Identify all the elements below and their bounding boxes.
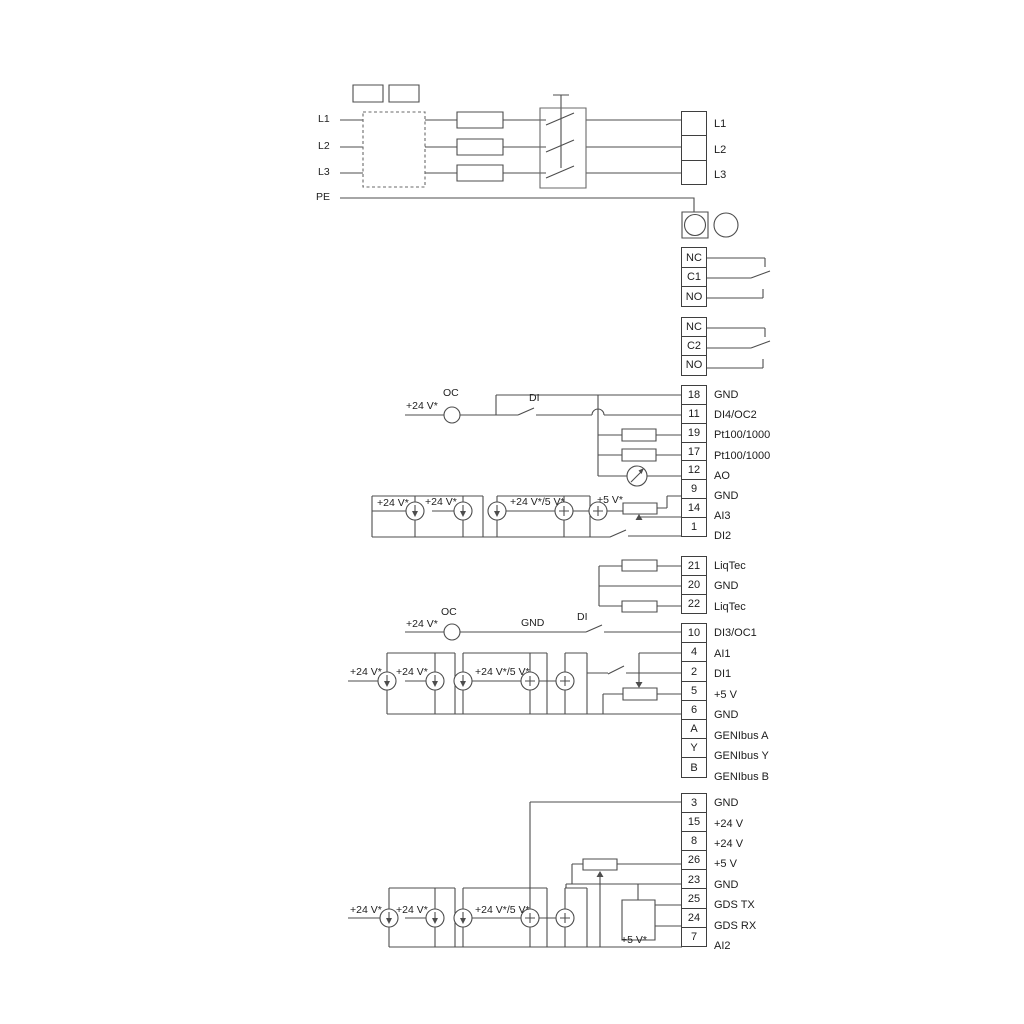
terminal-cell: 1 <box>681 517 707 537</box>
io-strip-3: 3158262325247 <box>681 793 707 947</box>
terminal-number: 8 <box>691 835 697 847</box>
terminal-cell: Y <box>681 738 707 759</box>
terminal-number: 9 <box>691 483 697 495</box>
terminal-label: AI2 <box>714 939 731 953</box>
terminal-label: +24 V <box>714 817 743 831</box>
terminal-number: 12 <box>688 464 700 476</box>
wiring-diagram-canvas <box>0 0 1024 1024</box>
terminal-number: 26 <box>688 854 700 866</box>
diagram-label: +24 V* <box>350 666 382 678</box>
terminal-number: Y <box>690 742 697 754</box>
diagram-label: L1 <box>318 113 330 125</box>
terminal-label: GDS TX <box>714 898 755 912</box>
terminal-number: 5 <box>691 685 697 697</box>
terminal-label: +5 V <box>714 857 737 871</box>
terminal-number: NO <box>686 359 703 371</box>
diagram-label: OC <box>441 606 457 618</box>
terminal-label: GND <box>714 489 738 503</box>
terminal-cell: 8 <box>681 831 707 851</box>
terminal-label: L2 <box>714 143 726 157</box>
terminal-label: LiqTec <box>714 559 746 573</box>
terminal-cell <box>681 111 707 137</box>
terminal-number: NC <box>686 321 702 333</box>
relay-1-terminals: NCC1NO <box>681 247 707 307</box>
terminal-label: GENIbus B <box>714 770 769 784</box>
terminal-cell: 11 <box>681 404 707 424</box>
terminal-cell: 19 <box>681 423 707 443</box>
terminal-label: GND <box>714 388 738 402</box>
terminal-cell: 20 <box>681 575 707 595</box>
terminal-label: AO <box>714 469 730 483</box>
terminal-label: Pt100/1000 <box>714 449 770 463</box>
terminal-cell: 14 <box>681 498 707 518</box>
terminal-cell: B <box>681 757 707 778</box>
main-switch-box <box>540 108 586 188</box>
diagram-label: +24 V* <box>396 666 428 678</box>
io-strip-1: 18111917129141 <box>681 385 707 537</box>
terminal-cell: 3 <box>681 793 707 813</box>
mains-output-terminals <box>681 111 707 185</box>
terminal-label: GENIbus Y <box>714 749 769 763</box>
terminal-label: DI1 <box>714 667 731 681</box>
terminal-number: 7 <box>691 931 697 943</box>
terminal-cell: 4 <box>681 642 707 663</box>
terminal-label: LiqTec <box>714 600 746 614</box>
terminal-number: 25 <box>688 893 700 905</box>
terminal-cell: NC <box>681 317 707 337</box>
diagram-label: +24 V* <box>406 618 438 630</box>
diagram-label: +24 V* <box>350 904 382 916</box>
diagram-label: OC <box>443 387 459 399</box>
terminal-number: 15 <box>688 816 700 828</box>
diagram-label: +5 V* <box>597 494 623 506</box>
terminal-cell: 15 <box>681 812 707 832</box>
terminal-cell: 10 <box>681 623 707 644</box>
diagram-label: PE <box>316 191 330 203</box>
terminal-cell: C2 <box>681 336 707 356</box>
terminal-number: 6 <box>691 704 697 716</box>
terminal-label: GND <box>714 579 738 593</box>
io-strip-2: 104256AYB <box>681 623 707 778</box>
terminal-cell: 12 <box>681 460 707 480</box>
terminal-label: GND <box>714 796 738 810</box>
terminal-cell: 22 <box>681 594 707 614</box>
terminal-number: 22 <box>688 598 700 610</box>
terminal-label: DI2 <box>714 529 731 543</box>
diagram-label: +24 V*/5 V* <box>475 904 530 916</box>
oc-circle <box>444 407 460 423</box>
terminal-cell: 17 <box>681 442 707 462</box>
terminal-cell: 18 <box>681 385 707 405</box>
terminal-cell: 25 <box>681 888 707 908</box>
terminal-number: C2 <box>687 340 701 352</box>
diagram-label: +24 V*/5 V* <box>475 666 530 678</box>
terminal-label: DI4/OC2 <box>714 408 757 422</box>
terminal-label: Pt100/1000 <box>714 428 770 442</box>
wiring-diagram-page: L1L2L3NCC1NONCC2NOGNDDI4/OC2Pt100/1000Pt… <box>0 0 1024 1024</box>
terminal-label: GDS RX <box>714 919 756 933</box>
terminal-label: L1 <box>714 117 726 131</box>
terminal-number: 20 <box>688 579 700 591</box>
diagram-label: +5 V* <box>621 934 647 946</box>
ground-screw-circle <box>685 215 706 236</box>
oc-circle <box>444 624 460 640</box>
diagram-label: +24 V* <box>396 904 428 916</box>
terminal-label: GENIbus A <box>714 729 768 743</box>
terminal-number: 18 <box>688 389 700 401</box>
terminal-number: C1 <box>687 271 701 283</box>
diagram-label: +24 V* <box>377 497 409 509</box>
terminal-number: 11 <box>688 408 699 420</box>
terminal-cell: NC <box>681 247 707 268</box>
relay-1-contact <box>707 258 770 298</box>
terminal-number: 21 <box>688 560 700 572</box>
diagram-label: +24 V*/5 V* <box>510 496 565 508</box>
terminal-number: NO <box>686 291 703 303</box>
terminal-cell: 2 <box>681 661 707 682</box>
terminal-cell: 5 <box>681 681 707 702</box>
emc-filter-box <box>363 112 425 187</box>
terminal-label: +5 V <box>714 688 737 702</box>
terminal-cell: 7 <box>681 927 707 947</box>
terminal-cell: NO <box>681 355 707 375</box>
terminal-number: 3 <box>691 797 697 809</box>
liqtec-strip: 212022 <box>681 556 707 614</box>
terminal-cell: A <box>681 719 707 740</box>
diagram-label: +24 V* <box>425 496 457 508</box>
terminal-label: GND <box>714 878 738 892</box>
terminal-number: 2 <box>691 666 697 678</box>
diagram-label: DI <box>577 611 588 623</box>
terminal-cell <box>681 160 707 186</box>
terminal-number: 14 <box>688 502 700 514</box>
terminal-label: AI1 <box>714 647 731 661</box>
diagram-label: GND <box>521 617 544 629</box>
terminal-number: 1 <box>691 521 697 533</box>
terminal-cell: NO <box>681 286 707 307</box>
terminal-number: 10 <box>688 627 700 639</box>
terminal-cell: 6 <box>681 700 707 721</box>
terminal-cell: 21 <box>681 556 707 576</box>
terminal-cell: 23 <box>681 869 707 889</box>
terminal-label: DI3/OC1 <box>714 626 757 640</box>
terminal-label: +24 V <box>714 837 743 851</box>
diagram-label: DI <box>529 392 540 404</box>
terminal-number: 4 <box>691 646 697 658</box>
terminal-label: GND <box>714 708 738 722</box>
earth-circle <box>714 213 738 237</box>
relay-2-contact <box>707 328 770 368</box>
diagram-label: +24 V* <box>406 400 438 412</box>
terminal-cell: 9 <box>681 479 707 499</box>
terminal-number: 24 <box>688 912 700 924</box>
terminal-number: B <box>690 762 697 774</box>
terminal-number: NC <box>686 252 702 264</box>
terminal-number: 23 <box>688 874 700 886</box>
terminal-cell: 26 <box>681 850 707 870</box>
terminal-label: L3 <box>714 168 726 182</box>
terminal-number: A <box>690 723 697 735</box>
diagram-label: L3 <box>318 166 330 178</box>
terminal-label: AI3 <box>714 509 731 523</box>
terminal-number: 19 <box>688 427 700 439</box>
terminal-cell <box>681 135 707 161</box>
terminal-cell: C1 <box>681 267 707 288</box>
diagram-label: L2 <box>318 140 330 152</box>
terminal-cell: 24 <box>681 908 707 928</box>
terminal-number: 17 <box>688 446 700 458</box>
relay-2-terminals: NCC2NO <box>681 317 707 376</box>
